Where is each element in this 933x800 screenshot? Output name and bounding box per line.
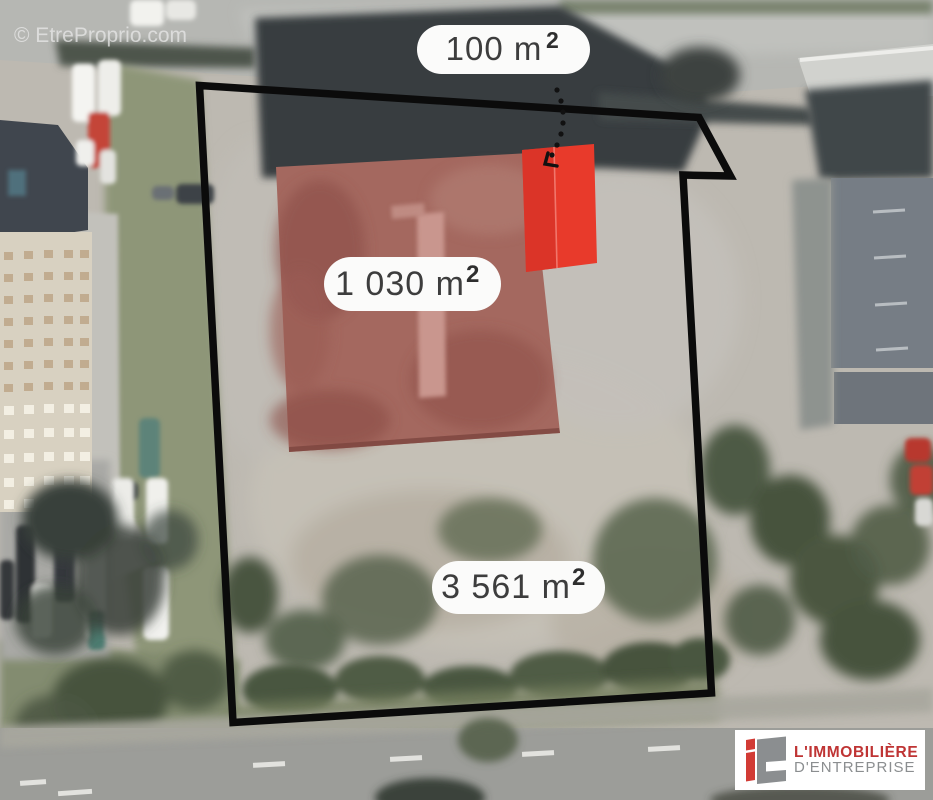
svg-text:2: 2 [572, 564, 585, 591]
svg-text:100 m: 100 m [446, 30, 543, 67]
svg-text:2: 2 [466, 261, 479, 288]
svg-text:3 561 m: 3 561 m [441, 568, 571, 606]
svg-text:© EtreProprio.com: © EtreProprio.com [14, 24, 187, 47]
svg-text:1 030 m: 1 030 m [335, 265, 465, 303]
svg-text:2: 2 [546, 27, 559, 53]
svg-text:D'ENTREPRISE: D'ENTREPRISE [794, 759, 916, 776]
